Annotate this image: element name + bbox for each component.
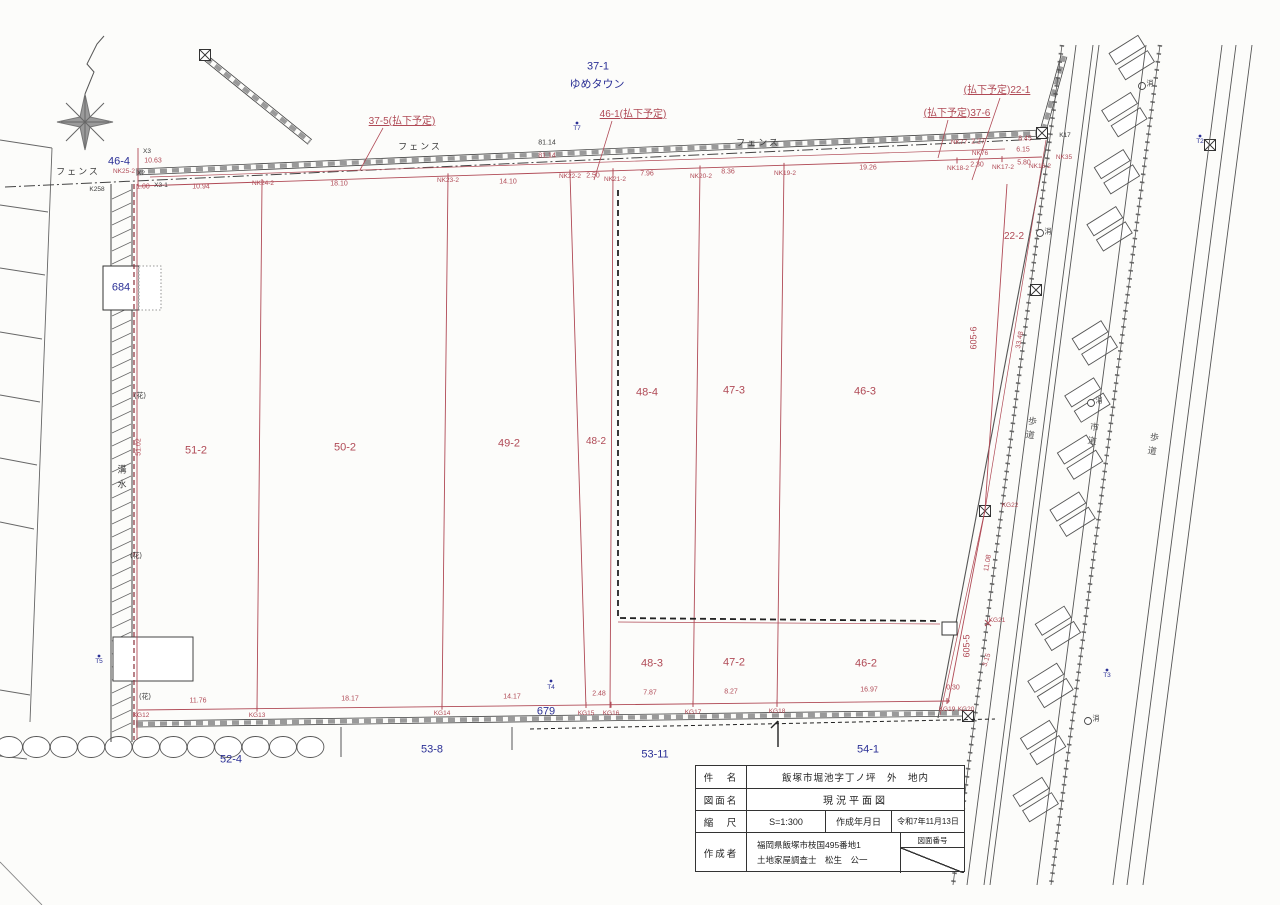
point-nk35: NK35 (1056, 155, 1072, 162)
parcel-label-684: 684 (112, 283, 130, 294)
annotation-46-1-haraisage: 46-1(払下予定) (600, 110, 667, 120)
annotation-37-6-haraisage: (払下予定)37-6 (924, 109, 991, 119)
dim-10-94: 10.94 (192, 184, 210, 191)
point-nk18-2: NK18-2 (947, 166, 969, 173)
dim-2-50: 2.50 (586, 173, 600, 180)
parcel-label-54-1: 54-1 (857, 745, 879, 756)
point-nk22-2: NK22-2 (559, 174, 581, 181)
point-nk24-2: NK24-2 (252, 181, 274, 188)
drawing-name-label: 図面名 (696, 789, 746, 810)
point-x2: X2 (137, 171, 145, 178)
point-nk16-2: NK16-2 (1029, 164, 1051, 171)
title-name-label: 件 名 (696, 766, 746, 788)
point-x3: X3 (143, 149, 151, 156)
title-block: 件 名 飯塚市堀池字丁ノ坪 外 地内 図面名 現況平面図 縮 尺 S=1:300… (695, 765, 965, 872)
title-name-value: 飯塚市堀池字丁ノ坪 外 地内 (746, 766, 964, 788)
drawing-name-value: 現況平面図 (746, 789, 964, 810)
dim-14-10: 14.10 (499, 179, 517, 186)
point-kg17: KG17 (685, 710, 702, 717)
point-t5: T5 (95, 659, 103, 666)
point-t4: T4 (547, 685, 555, 692)
point-nk17-2: NK17-2 (992, 165, 1014, 172)
parcel-label-22-2: 22-2 (1004, 232, 1024, 242)
point-t7: T7 (573, 126, 581, 133)
parcel-label-46-3: 46-3 (854, 387, 876, 398)
parcel-label-46-4: 46-4 (108, 157, 130, 168)
title-block-row-name: 件 名 飯塚市堀池字丁ノ坪 外 地内 (696, 766, 964, 788)
parcel-label-51-2: 51-2 (185, 446, 207, 457)
dim-6-15: 6.15 (1016, 147, 1030, 154)
dim-10-63: 10.63 (144, 158, 162, 165)
gutter-text-1: 溝 (117, 466, 126, 475)
scale-label: 縮 尺 (696, 811, 746, 832)
date-value: 令和7年11月13日 (891, 811, 964, 832)
date-label: 作成年月日 (825, 811, 891, 832)
parcel-label-48-3: 48-3 (641, 659, 663, 670)
annotation-37-5-haraisage: 37-5(払下予定) (369, 117, 436, 127)
author-label: 作成者 (696, 833, 746, 872)
author-address: 福岡県飯塚市枝国495番地1 (757, 839, 861, 851)
hana-note-1: (花) (134, 393, 146, 400)
dim-2-27: 2.27 (971, 139, 985, 146)
title-block-row-scale: 縮 尺 S=1:300 作成年月日 令和7年11月13日 (696, 810, 964, 832)
parcel-label-47-2: 47-2 (723, 658, 745, 669)
parcel-label-46-2: 46-2 (855, 659, 877, 670)
parcel-label-50-2: 50-2 (334, 443, 356, 454)
point-kg22: KG22 (1002, 503, 1019, 510)
hana-note-2: (花) (130, 553, 142, 560)
point-k17: K17 (1059, 133, 1071, 140)
hydrant-label-2: 消 (1096, 398, 1103, 405)
dim-5-80: 5.80 (1017, 160, 1031, 167)
title-block-row-drawing: 図面名 現況平面図 (696, 788, 964, 810)
dim-14-17: 14.17 (503, 694, 521, 701)
dim-18-17: 18.17 (341, 696, 359, 703)
dim-18-10: 18.10 (330, 181, 348, 188)
hydrant-label-4: 消 (1093, 716, 1100, 723)
dim-7-96: 7.96 (640, 171, 654, 178)
dim-19-26: 19.26 (859, 165, 877, 172)
parcel-label-52-4: 52-4 (220, 755, 242, 766)
parcel-label-47-3: 47-3 (723, 386, 745, 397)
point-t2: T2 (1196, 139, 1204, 146)
hana-note-3: (花) (139, 694, 151, 701)
point-kg12: KG12 (133, 713, 150, 720)
parcel-label-53-11: 53-11 (641, 750, 668, 761)
author-name: 土地家屋調査士 松生 公一 (757, 854, 868, 866)
parcel-label-605-5: 605-5 (963, 634, 972, 657)
dim-2-48: 2.48 (592, 691, 606, 698)
subject-boundary-dashed (134, 184, 995, 757)
parcel-label-53-8: 53-8 (421, 745, 443, 756)
parcel-label-48-2: 48-2 (586, 437, 606, 447)
point-x3-1: X3-1 (154, 183, 168, 190)
point-markers (942, 620, 991, 635)
point-nk25-2: NK25-2 (113, 169, 135, 176)
point-nk21-2: NK21-2 (604, 177, 626, 184)
point-nk20-2: NK20-2 (690, 174, 712, 181)
parcel-label-605-6: 605-6 (970, 326, 979, 349)
parcel-boundary-red (137, 98, 1046, 740)
point-kg20: KG20 (958, 707, 975, 714)
drawing-number-label: 図面番号 (900, 833, 964, 848)
hydrant-label-3: 消 (1147, 81, 1154, 88)
ditch-strip (103, 184, 193, 742)
point-k258: K258 (89, 187, 104, 194)
scale-value: S=1:300 (746, 811, 825, 832)
parcel-label-49-2: 49-2 (498, 439, 520, 450)
neighbor-boundary-lines (0, 140, 52, 905)
fence-text-left: フェンス (56, 168, 100, 177)
point-kg21: KG21 (989, 618, 1006, 625)
dim-51-02: 51.02 (136, 438, 143, 456)
drawing-number-blank (900, 848, 964, 873)
dim-8-36: 8.36 (721, 169, 735, 176)
point-nk23-2: NK23-2 (437, 178, 459, 185)
point-kg15: KG15 (578, 711, 595, 718)
point-t3: T3 (1103, 673, 1111, 680)
point-nk19-2: NK19-2 (774, 171, 796, 178)
dim-81-14-red: 81.14 (538, 153, 556, 160)
dim-2-30: 2.30 (970, 162, 984, 169)
fence-text-right: フェンス (736, 139, 780, 148)
parcel-label-37-1: 37-1 (587, 62, 609, 73)
dim-8-27: 8.27 (724, 689, 738, 696)
parcel-label-679: 679 (537, 707, 555, 718)
annotation-22-1-haraisage: (払下予定)22-1 (964, 86, 1031, 96)
point-kg19: KG19 (939, 707, 956, 714)
dim-11-76: 11.76 (190, 698, 207, 705)
dim-81-14-black: 81.14 (538, 140, 556, 147)
point-kg14: KG14 (434, 711, 451, 718)
fence-text-middle: フェンス (398, 143, 442, 152)
survey-plan-sheet: 37-1 ゆめタウン 46-4 684 679 52-4 53-8 53-11 … (0, 0, 1280, 905)
dim-16-97: 16.97 (860, 687, 878, 694)
point-kg13: KG13 (249, 713, 266, 720)
parcel-label-48-4: 48-4 (636, 388, 658, 399)
hydrant-label-1: 消 (1045, 229, 1052, 236)
point-kg16: KG16 (603, 711, 620, 718)
dim-0-30: 0.30 (946, 685, 960, 692)
point-nk76: NK76 (972, 151, 988, 158)
north-arrow-icon (57, 36, 113, 150)
dim-8-45: 8.45 (1018, 136, 1032, 143)
dim-7-87: 7.87 (643, 690, 657, 697)
dim-1-00: 1.00 (136, 184, 150, 191)
point-nk77: NK77 (951, 140, 967, 147)
point-kg18: KG18 (769, 709, 786, 716)
title-block-row-author: 作成者 福岡県飯塚市枝国495番地1 土地家屋調査士 松生 公一 図面番号 (696, 832, 964, 872)
label-yumetown: ゆめタウン (570, 80, 625, 91)
gutter-text-2: 水 (117, 481, 126, 490)
